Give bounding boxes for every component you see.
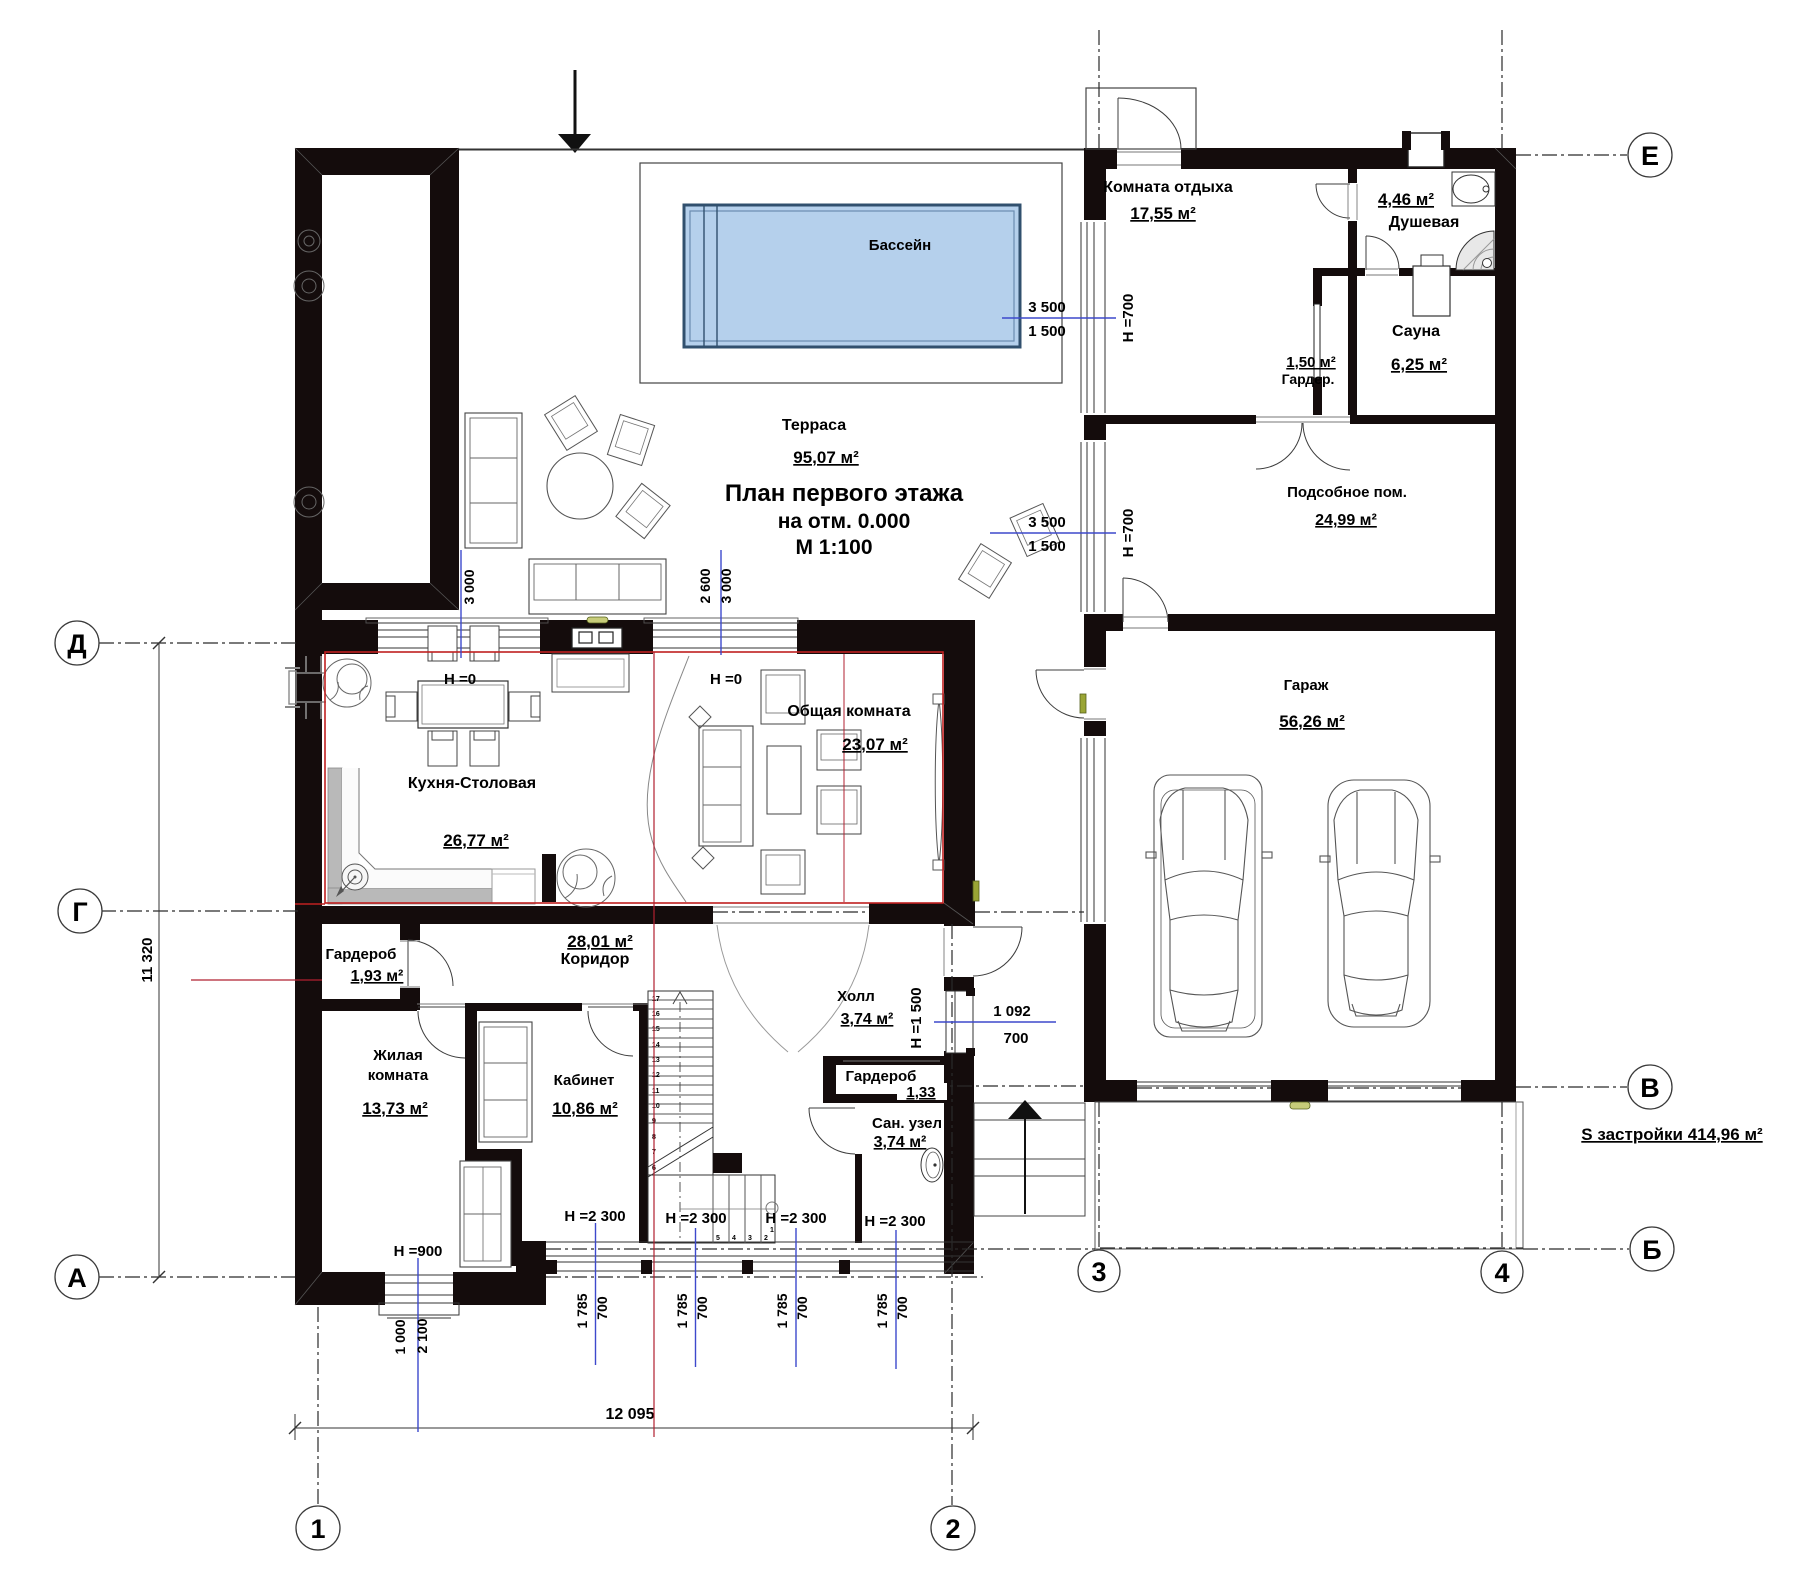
svg-text:4: 4 (732, 1235, 736, 1242)
svg-text:1 785: 1 785 (674, 1293, 690, 1328)
svg-text:3,74 м²: 3,74 м² (841, 1011, 894, 1028)
svg-text:1,33: 1,33 (906, 1084, 935, 1101)
svg-text:12 095: 12 095 (606, 1406, 655, 1423)
svg-text:Е: Е (1641, 141, 1659, 171)
svg-text:2: 2 (945, 1514, 960, 1544)
svg-text:H =2 300: H =2 300 (765, 1210, 826, 1227)
svg-text:План первого этажа: План первого этажа (725, 480, 964, 507)
svg-text:1,50 м²: 1,50 м² (1286, 354, 1335, 371)
svg-text:3: 3 (748, 1235, 752, 1242)
svg-text:Гараж: Гараж (1284, 677, 1329, 694)
svg-text:2 100: 2 100 (414, 1318, 430, 1353)
svg-text:2 600: 2 600 (697, 568, 713, 603)
svg-text:Б: Б (1642, 1235, 1661, 1265)
svg-text:4: 4 (1494, 1258, 1509, 1288)
svg-text:11 320: 11 320 (139, 937, 156, 982)
svg-text:комната: комната (368, 1067, 429, 1084)
svg-text:Подсобное пом.: Подсобное пом. (1287, 484, 1407, 501)
svg-text:6,25 м²: 6,25 м² (1391, 355, 1447, 374)
svg-text:10,86 м²: 10,86 м² (552, 1099, 618, 1118)
svg-text:23,07 м²: 23,07 м² (842, 735, 908, 754)
svg-text:1,93 м²: 1,93 м² (351, 968, 404, 985)
svg-text:3 500: 3 500 (1028, 299, 1066, 316)
svg-text:Сауна: Сауна (1392, 323, 1440, 340)
svg-text:56,26 м²: 56,26 м² (1279, 712, 1345, 731)
svg-text:3 000: 3 000 (718, 568, 734, 603)
svg-text:H =0: H =0 (710, 671, 742, 688)
svg-text:3 500: 3 500 (1028, 514, 1066, 531)
svg-text:1 500: 1 500 (1028, 538, 1066, 555)
svg-text:Гардероб: Гардероб (846, 1068, 917, 1085)
svg-text:11: 11 (652, 1088, 660, 1095)
svg-text:М 1:100: М 1:100 (795, 536, 872, 559)
svg-text:Бассейн: Бассейн (869, 237, 931, 254)
svg-text:3 000: 3 000 (461, 569, 477, 604)
svg-text:S застройки 414,96 м²: S застройки 414,96 м² (1581, 1125, 1763, 1144)
svg-text:3,74 м²: 3,74 м² (874, 1134, 927, 1151)
svg-text:H =0: H =0 (444, 671, 476, 688)
svg-text:Гардероб: Гардероб (326, 946, 397, 963)
svg-text:4,46 м²: 4,46 м² (1378, 190, 1434, 209)
svg-text:700: 700 (594, 1296, 610, 1320)
svg-text:H =900: H =900 (394, 1243, 443, 1260)
svg-text:13,73 м²: 13,73 м² (362, 1099, 428, 1118)
svg-text:Кабинет: Кабинет (554, 1072, 615, 1089)
svg-text:3: 3 (1091, 1257, 1106, 1287)
svg-text:2: 2 (764, 1235, 768, 1242)
svg-text:H =1 500: H =1 500 (908, 987, 925, 1048)
svg-text:H =2 300: H =2 300 (864, 1213, 925, 1230)
svg-text:Комната отдыха: Комната отдыха (1103, 179, 1233, 196)
svg-text:95,07 м²: 95,07 м² (793, 448, 859, 467)
svg-text:А: А (67, 1263, 87, 1293)
svg-text:1 785: 1 785 (574, 1293, 590, 1328)
svg-text:5: 5 (716, 1235, 720, 1242)
svg-text:Сан. узел: Сан. узел (872, 1115, 942, 1132)
svg-text:16: 16 (652, 1011, 660, 1018)
svg-text:1 500: 1 500 (1028, 323, 1066, 340)
svg-text:H =700: H =700 (1120, 509, 1137, 558)
svg-text:Душевая: Душевая (1389, 214, 1460, 231)
svg-text:17,55 м²: 17,55 м² (1130, 204, 1196, 223)
svg-text:на отм. 0.000: на отм. 0.000 (778, 510, 911, 533)
svg-text:17: 17 (652, 996, 660, 1003)
svg-text:700: 700 (894, 1296, 910, 1320)
svg-text:700: 700 (694, 1296, 710, 1320)
svg-text:14: 14 (652, 1042, 660, 1049)
svg-text:Жилая: Жилая (372, 1047, 422, 1064)
svg-text:10: 10 (652, 1103, 660, 1110)
svg-text:В: В (1640, 1073, 1660, 1103)
svg-text:Общая комната: Общая комната (787, 703, 910, 720)
svg-text:24,99 м²: 24,99 м² (1315, 512, 1377, 529)
svg-text:Кухня-Столовая: Кухня-Столовая (408, 775, 536, 792)
svg-text:Холл: Холл (837, 988, 875, 1005)
svg-text:H =700: H =700 (1120, 294, 1137, 343)
svg-text:700: 700 (1003, 1030, 1028, 1047)
svg-text:15: 15 (652, 1026, 660, 1033)
svg-text:Гардер.: Гардер. (1282, 371, 1335, 387)
svg-text:12: 12 (652, 1072, 660, 1079)
svg-text:1 785: 1 785 (874, 1293, 890, 1328)
svg-text:Коридор: Коридор (561, 951, 630, 968)
svg-text:13: 13 (652, 1057, 660, 1064)
svg-text:Г: Г (72, 897, 87, 927)
svg-text:1 000: 1 000 (392, 1319, 408, 1354)
svg-text:Терраса: Терраса (782, 417, 846, 434)
svg-text:1 092: 1 092 (993, 1003, 1031, 1020)
svg-text:H =2 300: H =2 300 (564, 1208, 625, 1225)
svg-text:28,01 м²: 28,01 м² (567, 932, 633, 951)
svg-text:1 785: 1 785 (774, 1293, 790, 1328)
svg-text:700: 700 (794, 1296, 810, 1320)
svg-text:1: 1 (310, 1514, 325, 1544)
svg-text:Д: Д (67, 629, 86, 659)
svg-text:1: 1 (770, 1227, 774, 1234)
svg-text:26,77 м²: 26,77 м² (443, 831, 509, 850)
svg-text:H =2 300: H =2 300 (665, 1210, 726, 1227)
